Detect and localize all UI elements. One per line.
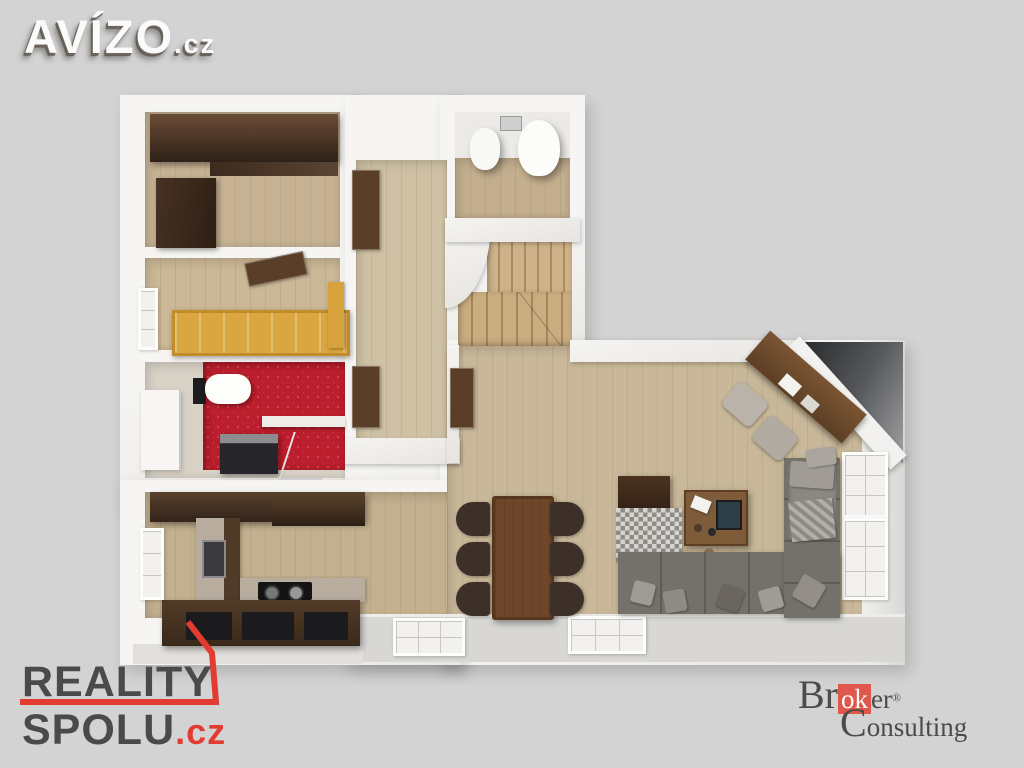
reality-spolu-line1: REALITY xyxy=(22,660,213,705)
staircase-winder-seam xyxy=(505,292,575,346)
pot xyxy=(288,585,304,601)
dining-chair xyxy=(456,502,490,536)
right-window-1 xyxy=(842,452,888,518)
dining-chair xyxy=(550,582,584,616)
bottom-window-2 xyxy=(568,616,646,654)
kitchen-counter-left-front xyxy=(224,518,240,602)
living-room-door xyxy=(450,368,474,428)
broker-line2: Consulting xyxy=(840,702,1018,745)
avizo-logo-tld: .cz xyxy=(174,29,216,59)
sofa-pillow xyxy=(662,588,687,613)
listing-photo: { "canvas": {"width": 1024, "height": 76… xyxy=(0,0,1024,768)
dining-chair xyxy=(456,542,490,576)
yellow-bed xyxy=(172,310,350,356)
wc-front-wall xyxy=(445,218,580,242)
bed-ladder xyxy=(328,282,344,348)
wc-wall-fixture xyxy=(500,116,522,131)
bedroom2-window xyxy=(138,288,158,350)
hallway-door-2 xyxy=(352,366,380,428)
clothes-rail xyxy=(210,162,338,176)
island-panel xyxy=(304,612,348,640)
kitchen-sink xyxy=(202,540,226,578)
kitchen-window xyxy=(140,528,164,600)
cup xyxy=(694,524,702,532)
dining-chair xyxy=(550,502,584,536)
tablet-on-table xyxy=(716,500,742,530)
staircase-upper-flight xyxy=(487,236,572,292)
hallway-end-wall xyxy=(340,438,460,464)
avizo-logo-text: AVÍZO xyxy=(24,10,174,63)
dresser xyxy=(156,178,216,248)
pot xyxy=(264,585,280,601)
cup xyxy=(708,528,716,536)
hallway-door-1 xyxy=(352,170,380,250)
broker-consulting-logo: Broker® Consulting xyxy=(798,674,1018,758)
reality-spolu-tld: .cz xyxy=(175,711,226,752)
dining-table xyxy=(492,496,554,620)
reality-spolu-logo: REALITY SPOLU.cz xyxy=(0,610,300,768)
reality-spolu-line2: SPOLU.cz xyxy=(22,708,226,753)
dining-chair xyxy=(456,582,490,616)
wardrobe xyxy=(150,114,338,162)
toilet xyxy=(205,374,251,404)
washing-machine xyxy=(220,434,278,474)
wc-toilet xyxy=(518,120,560,176)
kitchen-upper-cabinets-step xyxy=(272,500,365,526)
avizo-logo: AVÍZO.cz xyxy=(24,12,216,61)
wc-sink xyxy=(470,128,500,170)
bottom-window-1 xyxy=(393,618,465,656)
bathroom-cabinet xyxy=(141,390,181,470)
tv-cabinet xyxy=(618,476,670,512)
right-window-2 xyxy=(842,518,888,600)
dining-chair xyxy=(550,542,584,576)
bathroom-shelf xyxy=(262,416,345,427)
plaid-throw xyxy=(788,498,836,542)
